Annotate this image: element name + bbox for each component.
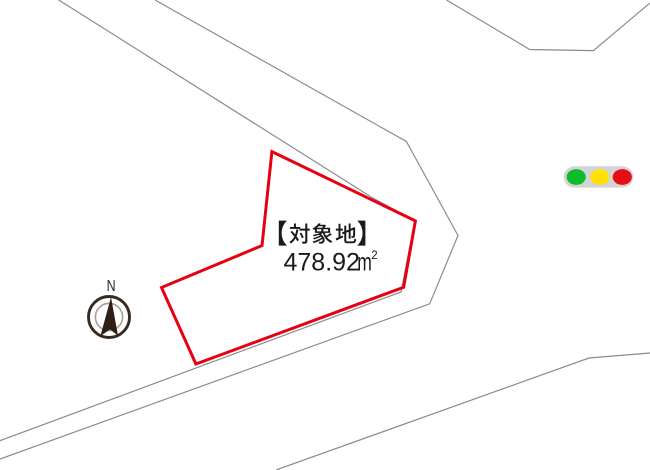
- svg-text:m: m: [357, 248, 372, 276]
- svg-text:478.92: 478.92: [284, 248, 360, 276]
- svg-text:2: 2: [371, 250, 377, 262]
- svg-text:N: N: [107, 278, 116, 295]
